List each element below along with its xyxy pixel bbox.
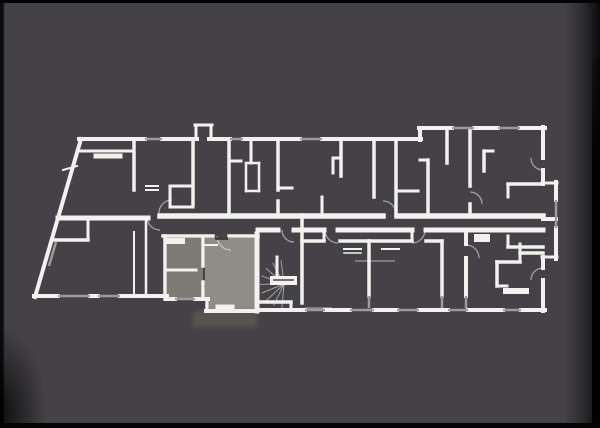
highlight-terrace: [193, 311, 257, 327]
door-leaves: [215, 237, 228, 240]
thin-detail-lines: [305, 261, 395, 308]
bottom-letterbox-bar: [0, 423, 600, 428]
highlighted-apartment[interactable]: [167, 238, 257, 327]
top-letterbox-bar: [0, 0, 600, 3]
highlight-main-room[interactable]: [205, 238, 257, 311]
floor-plan: [0, 0, 600, 428]
stair-landing: [270, 276, 297, 285]
bottom-right-edge-shadow: [592, 58, 600, 428]
door-swing-arc: [383, 201, 396, 214]
stair-tread-line: [266, 284, 284, 300]
bottom-left-corner-shadow: [0, 328, 46, 428]
wall-segment: [63, 166, 77, 170]
door-leaf: [215, 237, 228, 240]
door-swing-arc: [470, 192, 482, 204]
video-frame: [0, 0, 600, 428]
